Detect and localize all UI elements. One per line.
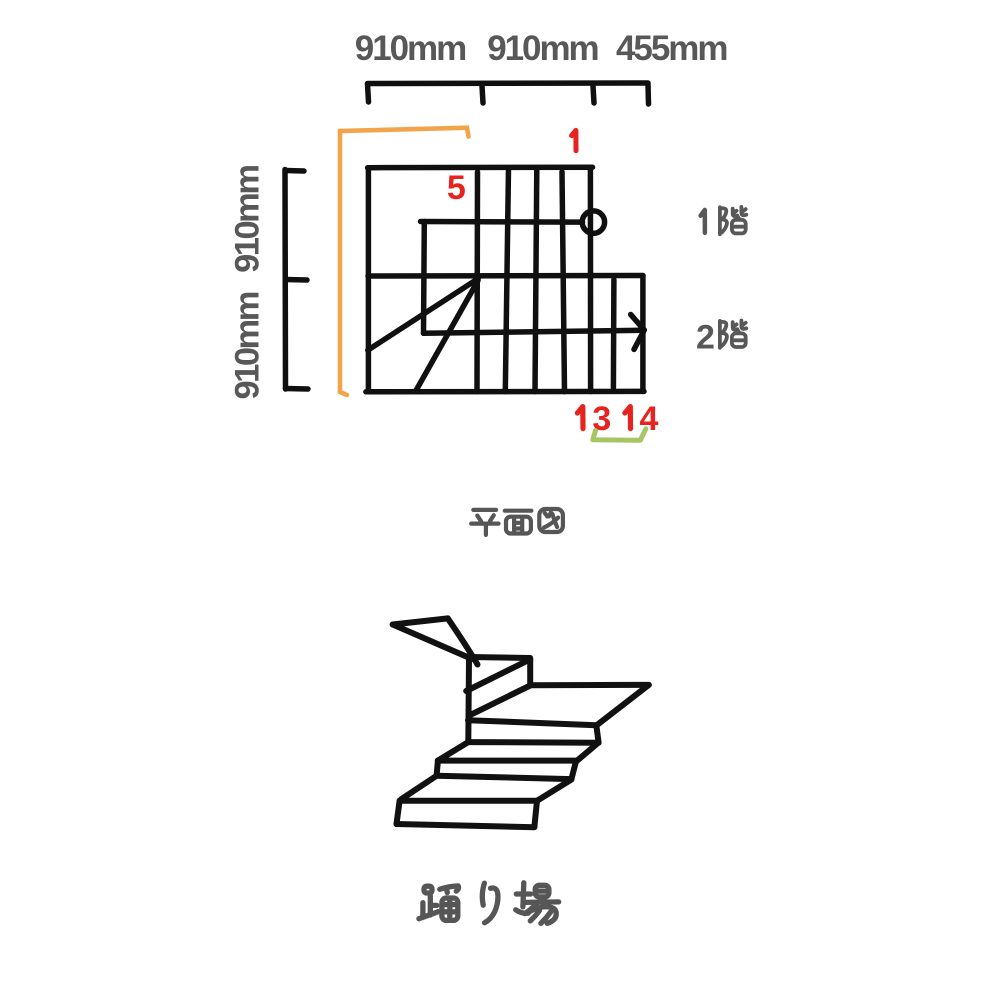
svg-text:910mm: 910mm — [229, 166, 267, 273]
svg-text:2: 2 — [696, 319, 715, 357]
svg-text:910mm: 910mm — [487, 29, 597, 68]
svg-text:910mm: 910mm — [229, 292, 267, 399]
svg-text:455mm: 455mm — [616, 29, 726, 68]
svg-text:910mm: 910mm — [355, 29, 465, 68]
svg-text:5: 5 — [447, 169, 466, 207]
